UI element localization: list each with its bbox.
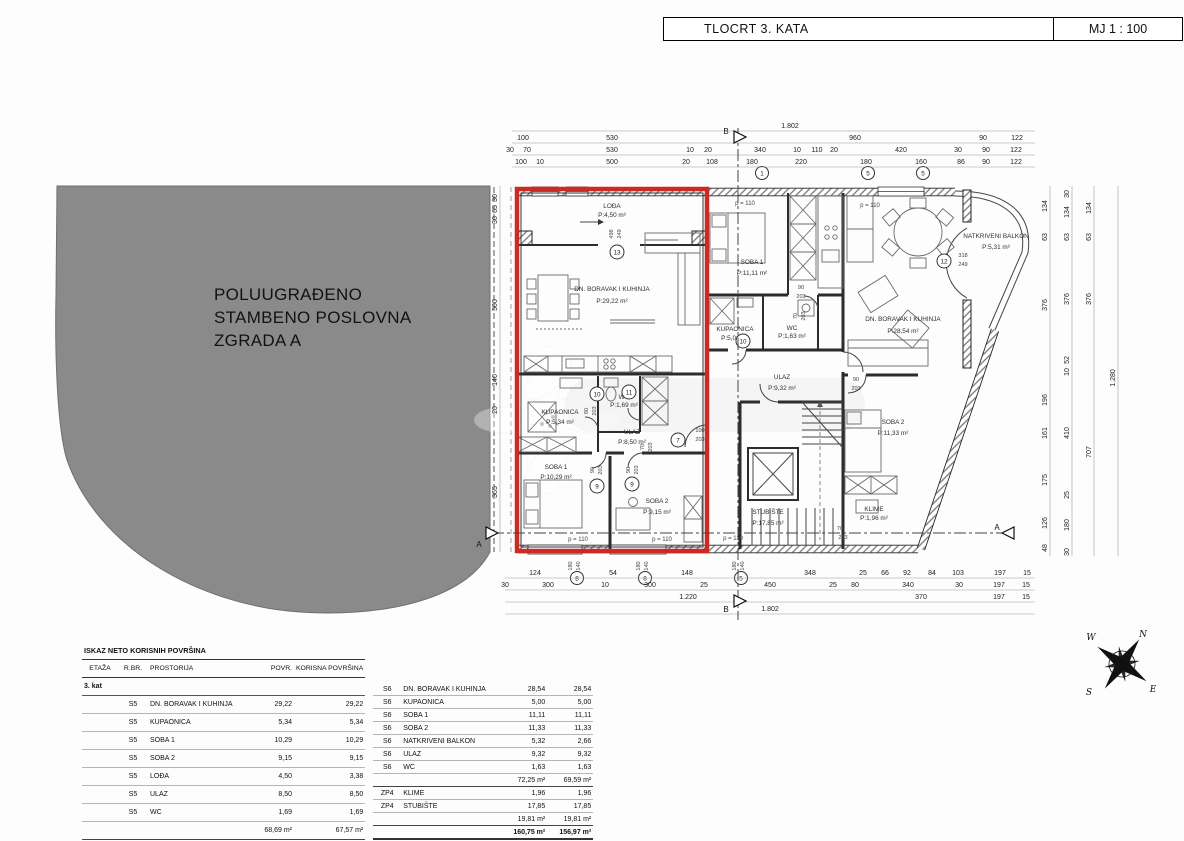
- grand-total-row: 160,75 m²156,97 m²: [373, 826, 593, 840]
- door-arc-dnevni6: [843, 352, 863, 372]
- cell-kor: 1,63: [547, 761, 593, 774]
- room-label: DN. BORAVAK I KUHINJA: [865, 316, 941, 323]
- opening-tag: 203: [851, 386, 860, 392]
- washbasin-6: [737, 298, 753, 307]
- room-area: P:1,96 m²: [860, 515, 888, 522]
- total-row: 68,69 m²67,57 m²: [82, 821, 365, 839]
- window: [878, 187, 924, 196]
- dim: 300: [542, 582, 554, 589]
- opening-tag: 140: [740, 561, 746, 570]
- cell-rbr: S5: [118, 785, 148, 803]
- parapet-label: p = 110: [652, 537, 672, 543]
- table-row: S6SOBA 111,1111,11: [373, 709, 593, 722]
- position-number: 10: [593, 392, 601, 399]
- cell-kor: 8,50: [294, 785, 365, 803]
- cell-kor: 11,33: [547, 722, 593, 735]
- dim: 348: [804, 570, 816, 577]
- table-row: S5ULAZ8,508,50: [82, 785, 365, 803]
- cell-name: SOBA 2: [401, 722, 505, 735]
- cell-name: DN. BORAVAK I KUHINJA: [148, 695, 256, 713]
- room-label: ULAZ: [624, 429, 640, 436]
- cell-povr: 28,54: [505, 683, 547, 696]
- opening-tag: 203: [634, 465, 640, 474]
- furniture: [518, 196, 954, 542]
- dim: 52: [1064, 356, 1071, 364]
- cell-povr: 10,29: [256, 731, 294, 749]
- position-number: 5: [866, 171, 870, 178]
- cell-name: WC: [148, 803, 256, 821]
- subtotal-povr: 19,81 m²: [505, 813, 547, 826]
- dim: 25: [829, 582, 837, 589]
- dim: 180: [860, 159, 872, 166]
- table-row: S5SOBA 110,2910,29: [82, 731, 365, 749]
- dim: 90: [979, 135, 987, 142]
- opening-tag: 70: [793, 313, 799, 319]
- col-korisna: KORISNA POVRŠINA: [294, 659, 365, 677]
- room-area: P:5,34 m²: [546, 419, 574, 426]
- dim: 90: [982, 159, 990, 166]
- wardrobe-column: [790, 196, 816, 280]
- dim: 10: [1064, 368, 1071, 376]
- cell-name: WC: [401, 761, 505, 774]
- dim: 25: [859, 570, 867, 577]
- section-triangle-b-bottom: [734, 595, 746, 607]
- dim: 70: [523, 147, 531, 154]
- opening-tag: 203: [796, 294, 805, 300]
- section-letter: A: [994, 523, 1000, 532]
- position-number: 1: [760, 171, 764, 178]
- dim: 1.802: [761, 606, 779, 613]
- dim: 92: [903, 570, 911, 577]
- cell-kor: 1,69: [294, 803, 365, 821]
- table-title: ISKAZ NETO KORISNIH POVRŠINA: [82, 642, 365, 659]
- subtotal-povr: 72,25 m²: [505, 774, 547, 787]
- cell-povr: 17,85: [505, 800, 547, 813]
- area-table-right: S6DN. BORAVAK I KUHINJA28,5428,54 S6KUPA…: [373, 683, 593, 840]
- opening-tag: 90: [590, 467, 596, 473]
- dim: 197: [993, 582, 1005, 589]
- compass-rose: N E S W: [1080, 622, 1164, 706]
- room-label: ULAZ: [774, 374, 790, 381]
- dim: 220: [795, 159, 807, 166]
- position-number: 13: [613, 250, 621, 257]
- dim: 134: [1086, 202, 1093, 214]
- grand-total-kor: 156,97 m²: [547, 826, 593, 840]
- dim: 530: [606, 147, 618, 154]
- cell-povr: 8,50: [256, 785, 294, 803]
- opening-tag: 90: [853, 377, 859, 383]
- table-row: ZP4KLIME1,961,96: [373, 787, 593, 800]
- room-area: P:29,22 m²: [596, 298, 627, 305]
- dim: 148: [681, 570, 693, 577]
- dim: 300: [644, 582, 656, 589]
- site-building-label: POLUUGRAĐENO STAMBENO POSLOVNA ZGRADA A: [214, 283, 412, 352]
- cell-kor: 3,38: [294, 767, 365, 785]
- dim: 15: [1023, 570, 1031, 577]
- cell-povr: 9,15: [256, 749, 294, 767]
- dim: 1.220: [679, 594, 697, 601]
- cell-kor: 2,66: [547, 735, 593, 748]
- dim: 30: [1064, 190, 1071, 198]
- room-label: LOĐA: [603, 203, 621, 210]
- windows: [528, 187, 924, 554]
- dim: 376: [1042, 299, 1049, 311]
- cell-name: ULAZ: [401, 748, 505, 761]
- dim: 80: [851, 582, 859, 589]
- site-polygon: [56, 186, 490, 613]
- room-area: P:1,63 m²: [778, 333, 806, 340]
- dim: 103: [952, 570, 964, 577]
- dim: 180: [746, 159, 758, 166]
- dim: 140: [492, 374, 499, 386]
- room-label: KUPAONICA: [716, 326, 754, 333]
- position-number: 5: [739, 576, 743, 583]
- dim: 30: [501, 582, 509, 589]
- cell-rbr: S6: [373, 722, 401, 735]
- cell-name: KLIME: [401, 787, 505, 800]
- table-row: S5KUPAONICA5,345,34: [82, 713, 365, 731]
- cell-name: SOBA 1: [148, 731, 256, 749]
- table-row: S6NATKRIVENI BALKON5,322,66: [373, 735, 593, 748]
- dim: 197: [993, 594, 1005, 601]
- subtotal-row: 19,81 m²19,81 m²: [373, 813, 593, 826]
- room-label: KLIME: [864, 506, 883, 513]
- dim: 160: [915, 159, 927, 166]
- cell-name: STUBIŠTE: [401, 800, 505, 813]
- room-area: P:9,32 m²: [768, 385, 796, 392]
- position-number: 8: [575, 576, 579, 583]
- dim: 66: [881, 570, 889, 577]
- dim: 365: [492, 486, 499, 498]
- dim: 376: [1086, 293, 1093, 305]
- dim: 134: [1042, 200, 1049, 212]
- dim: 1.802: [781, 123, 799, 130]
- table-title-row: ISKAZ NETO KORISNIH POVRŠINA: [82, 642, 365, 659]
- floor-row: 3. kat: [82, 677, 365, 695]
- dim: 25: [1064, 491, 1071, 499]
- room-area: P:9,15 m²: [643, 509, 671, 516]
- room-label: SOBA 1: [545, 464, 568, 471]
- col-povr: POVR.: [256, 659, 294, 677]
- dim: 197: [994, 570, 1006, 577]
- cell-kor: 28,54: [547, 683, 593, 696]
- room-area: P:5,31 m²: [982, 244, 1010, 251]
- dim: 180: [1064, 519, 1071, 531]
- cell-rbr: S6: [373, 761, 401, 774]
- cell-name: SOBA 1: [401, 709, 505, 722]
- floorplan-sheet: { "colors": { "accent_red": "#cc2b24", "…: [0, 0, 1184, 841]
- dim: 63: [1064, 233, 1071, 241]
- room-label: STUBIŠTE: [752, 507, 783, 516]
- cell-povr: 11,11: [505, 709, 547, 722]
- dim: 340: [754, 147, 766, 154]
- compass-n: N: [1138, 630, 1148, 640]
- opening-tag: 90: [798, 285, 804, 291]
- dim: 420: [895, 147, 907, 154]
- subtotal-kor: 19,81 m²: [547, 813, 593, 826]
- dim: 30: [506, 147, 514, 154]
- cell-rbr: S5: [118, 767, 148, 785]
- room-area: P:10,29 m²: [540, 474, 571, 481]
- compass-w: W: [1086, 633, 1096, 643]
- loggia-arrowhead: [598, 219, 604, 225]
- opening-tag: 180: [568, 561, 574, 570]
- opening-tag: 249: [958, 262, 967, 268]
- cell-kor: 9,32: [547, 748, 593, 761]
- shower-6: [710, 298, 734, 324]
- table-row: ZP4STUBIŠTE17,8517,85: [373, 800, 593, 813]
- cell-povr: 5,34: [256, 713, 294, 731]
- dim: 10: [793, 147, 801, 154]
- cell-rbr: S5: [118, 749, 148, 767]
- cell-name: NATKRIVENI BALKON: [401, 735, 505, 748]
- cell-rbr: S5: [118, 803, 148, 821]
- dim: 500: [606, 159, 618, 166]
- position-number: 5: [921, 171, 925, 178]
- balcony-pier-top: [963, 190, 971, 222]
- cell-povr: 9,32: [505, 748, 547, 761]
- parapet-label: p = 110: [723, 536, 743, 542]
- area-table: ISKAZ NETO KORISNIH POVRŠINA ETAŽA R.BR.…: [82, 642, 593, 840]
- opening-tag: 498: [609, 229, 615, 238]
- cell-kor: 10,29: [294, 731, 365, 749]
- col-rbr: R.BR.: [118, 659, 148, 677]
- subtotal-row: 72,25 m²69,59 m²: [373, 774, 593, 787]
- col-etaza: ETAŽA: [82, 659, 118, 677]
- room-label: KUPAONICA: [541, 409, 579, 416]
- cell-kor: 17,85: [547, 800, 593, 813]
- dim: 25: [700, 582, 708, 589]
- dim: 54: [609, 570, 617, 577]
- balcony-pier-bottom: [963, 300, 971, 368]
- opening-tag: 203: [695, 437, 704, 443]
- area-table-left: ISKAZ NETO KORISNIH POVRŠINA ETAŽA R.BR.…: [82, 642, 365, 840]
- room-label: SOBA 2: [646, 498, 669, 505]
- dim: 30: [1064, 548, 1071, 556]
- dim: 410: [1064, 427, 1071, 439]
- site-label-line3: ZGRADA A: [214, 329, 412, 352]
- dim: 48: [1042, 544, 1049, 552]
- dim: 20: [704, 147, 712, 154]
- cell-rbr: S6: [373, 696, 401, 709]
- opening-tag: 70: [640, 444, 646, 450]
- opening-tag: 180: [732, 561, 738, 570]
- dim: 450: [764, 582, 776, 589]
- opening-tag: 140: [576, 561, 582, 570]
- site-label-line2: STAMBENO POSLOVNA: [214, 306, 412, 329]
- cell-rbr: ZP4: [373, 787, 401, 800]
- watermark: [474, 346, 865, 494]
- opening-tag: 140: [644, 561, 650, 570]
- table-row: S5DN. BORAVAK I KUHINJA29,2229,22: [82, 695, 365, 713]
- room-area: P:28,54 m²: [887, 328, 918, 335]
- cell-kor: 5,34: [294, 713, 365, 731]
- cell-rbr: S6: [373, 709, 401, 722]
- dim: 15: [1022, 582, 1030, 589]
- cell-rbr: ZP4: [373, 800, 401, 813]
- cell-name: ULAZ: [148, 785, 256, 803]
- cell-name: DN. BORAVAK I KUHINJA: [401, 683, 505, 696]
- table-row: S5LOĐA4,503,38: [82, 767, 365, 785]
- room-label: WC: [787, 325, 798, 332]
- section-letter: B: [723, 127, 728, 136]
- dim: 122: [1010, 159, 1022, 166]
- closet-soba2-6: [845, 476, 897, 494]
- grand-total-povr: 160,75 m²: [505, 826, 547, 840]
- opening-tag: 80: [584, 408, 590, 414]
- position-number: 11: [626, 390, 633, 397]
- dim: 90: [982, 147, 990, 154]
- dim: 100: [515, 159, 527, 166]
- opening-tag: 90: [626, 467, 632, 473]
- dim: 30: [492, 216, 499, 224]
- cell-rbr: S5: [118, 695, 148, 713]
- opening-tag: 70: [837, 526, 843, 532]
- room-area: P:11,33 m²: [878, 430, 909, 437]
- cell-povr: 1,69: [256, 803, 294, 821]
- dim: 960: [849, 135, 861, 142]
- table-row: S6SOBA 211,3311,33: [373, 722, 593, 735]
- dining-table: [527, 275, 579, 321]
- cell-rbr: S5: [118, 713, 148, 731]
- cell-rbr: S6: [373, 748, 401, 761]
- compass-e: E: [1149, 685, 1157, 695]
- tv-bench: [610, 320, 655, 323]
- dim: 15: [1022, 594, 1030, 601]
- room-label: DN. BORAVAK I KUHINJA: [574, 286, 650, 293]
- dim: 530: [606, 135, 618, 142]
- cell-rbr: S5: [118, 731, 148, 749]
- section-letter: A: [476, 540, 482, 549]
- room-label: SOBA 2: [882, 419, 905, 426]
- position-number: 10: [739, 339, 747, 346]
- dim: 108: [706, 159, 718, 166]
- dim: 63: [1086, 233, 1093, 241]
- position-number: 9: [595, 484, 599, 491]
- cell-povr: 29,22: [256, 695, 294, 713]
- opening-tag: 203: [592, 406, 598, 415]
- dim: 63: [1042, 233, 1049, 241]
- dim: 500: [492, 299, 499, 311]
- dim: 84: [928, 570, 936, 577]
- dim: 175: [1042, 474, 1049, 486]
- cell-kor: 1,96: [547, 787, 593, 800]
- opening-tag: 203: [648, 442, 654, 451]
- table-row: S6KUPAONICA5,005,00: [373, 696, 593, 709]
- position-number: 9: [630, 482, 634, 489]
- section-triangle-a-right: [1002, 527, 1014, 539]
- table-row: S6ULAZ9,329,32: [373, 748, 593, 761]
- total-kor: 67,57 m²: [294, 821, 365, 839]
- position-number: 7: [676, 438, 680, 445]
- opening-tag: 318: [958, 253, 967, 259]
- cell-name: LOĐA: [148, 767, 256, 785]
- cell-name: SOBA 2: [148, 749, 256, 767]
- dim: 10: [536, 159, 544, 166]
- room-area: P:1,69 m²: [610, 402, 638, 409]
- opening-tag: 203: [801, 311, 807, 320]
- site-label-line1: POLUUGRAĐENO: [214, 283, 412, 306]
- dim: 86: [957, 159, 965, 166]
- cell-povr: 5,00: [505, 696, 547, 709]
- door-arc-wc6: [804, 296, 818, 310]
- opening-tag: 203: [598, 465, 604, 474]
- closet-soba2: [684, 496, 702, 542]
- table-row: S5SOBA 29,159,15: [82, 749, 365, 767]
- dim: 65: [492, 205, 499, 213]
- cell-name: KUPAONICA: [401, 696, 505, 709]
- dim: 340: [902, 582, 914, 589]
- cell-name: KUPAONICA: [148, 713, 256, 731]
- dim: 370: [915, 594, 927, 601]
- dim: 20: [682, 159, 690, 166]
- sofa: [645, 233, 700, 325]
- cell-kor: 9,15: [294, 749, 365, 767]
- room-area: P:11,11 m²: [737, 270, 767, 277]
- cell-povr: 11,33: [505, 722, 547, 735]
- section-letter: B: [723, 605, 728, 614]
- dim: 110: [811, 147, 822, 154]
- dim: 10: [686, 147, 694, 154]
- col-prostorija: PROSTORIJA: [148, 659, 256, 677]
- room-label: SOBA 1: [741, 259, 764, 266]
- dim: 30: [955, 582, 963, 589]
- dim: 122: [1011, 135, 1023, 142]
- dim: 707: [1086, 446, 1093, 458]
- table-row: S5WC1,691,69: [82, 803, 365, 821]
- cell-povr: 1,63: [505, 761, 547, 774]
- dim: 30: [954, 147, 962, 154]
- cell-kor: 11,11: [547, 709, 593, 722]
- hatched-wall-diagonal: [921, 330, 995, 549]
- site-area: [56, 186, 511, 613]
- cell-povr: 4,50: [256, 767, 294, 785]
- position-number: 12: [940, 259, 948, 266]
- room-area: P:17,85 m²: [752, 520, 783, 527]
- dim: 134: [1064, 206, 1071, 218]
- dim: 161: [1042, 427, 1049, 439]
- interior-walls: [518, 193, 967, 549]
- dim: 100: [517, 135, 529, 142]
- cell-kor: 29,22: [294, 695, 365, 713]
- kitchen-6: [818, 196, 843, 288]
- table-row: S6DN. BORAVAK I KUHINJA28,5428,54: [373, 683, 593, 696]
- floor-label: 3. kat: [82, 677, 365, 695]
- door-arc-kupa6: [732, 350, 746, 364]
- opening-tag: 180: [636, 561, 642, 570]
- room-area: P:4,50 m²: [598, 212, 626, 219]
- dim: 10: [601, 582, 609, 589]
- section-triangle-a-left: [486, 527, 498, 539]
- dim: 30: [492, 194, 499, 202]
- cell-povr: 5,32: [505, 735, 547, 748]
- loggia-pier-left: [518, 231, 532, 245]
- opening-tag: 249: [617, 229, 623, 238]
- parapet-label: p = 110: [568, 537, 588, 543]
- cell-povr: 1,96: [505, 787, 547, 800]
- dim: 20: [492, 406, 499, 414]
- cell-kor: 5,00: [547, 696, 593, 709]
- subtotal-kor: 69,59 m²: [547, 774, 593, 787]
- armchair-1: [858, 275, 898, 312]
- total-povr: 68,69 m²: [256, 821, 294, 839]
- table-row: S6WC1,631,63: [373, 761, 593, 774]
- dim: 122: [1010, 147, 1022, 154]
- cell-rbr: S6: [373, 683, 401, 696]
- elevator: [748, 448, 798, 500]
- parapet-label: p = 110: [860, 203, 880, 209]
- opening-tag: 100: [695, 428, 704, 434]
